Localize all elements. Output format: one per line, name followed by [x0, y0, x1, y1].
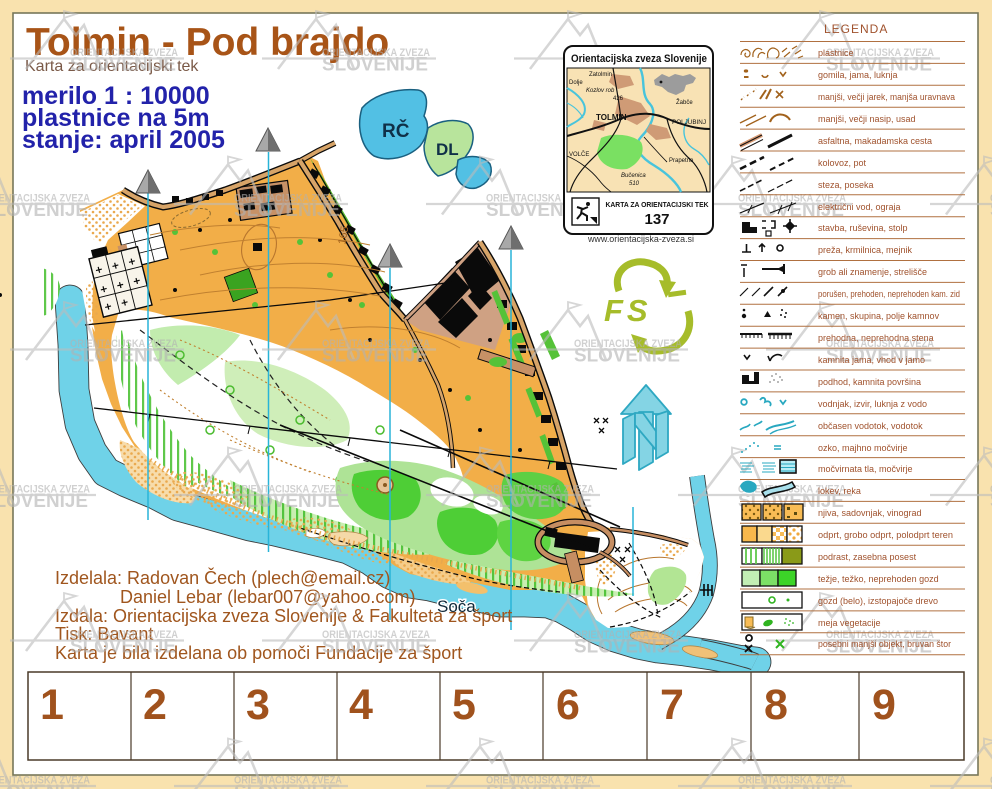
svg-text:Dolje: Dolje — [569, 80, 583, 86]
svg-text:grob ali znamenje, strelišče: grob ali znamenje, strelišče — [818, 267, 927, 277]
svg-text:LEGENDA: LEGENDA — [824, 22, 888, 36]
svg-text:asfaltna, makadamska cesta: asfaltna, makadamska cesta — [818, 136, 932, 146]
svg-text:posebni manjši objekt, bruvan: posebni manjši objekt, bruvan štor — [818, 639, 951, 649]
svg-text:510: 510 — [629, 181, 640, 187]
svg-text:odprt, grobo odprt, polodprt t: odprt, grobo odprt, polodprt teren — [818, 530, 953, 540]
svg-text:2: 2 — [143, 681, 167, 729]
svg-text:Bučenica: Bučenica — [621, 173, 646, 179]
svg-text:kamen, skupina, polje kamnov: kamen, skupina, polje kamnov — [818, 311, 940, 321]
svg-text:VOLČE: VOLČE — [569, 151, 589, 158]
svg-text:DL: DL — [436, 140, 459, 159]
svg-text:kamnita jama, vhod v jamo: kamnita jama, vhod v jamo — [818, 355, 925, 365]
svg-text:stavba, ruševina, stolp: stavba, ruševina, stolp — [818, 223, 908, 233]
svg-text:vodnjak, izvir, luknja z vodo: vodnjak, izvir, luknja z vodo — [818, 399, 927, 409]
svg-text:5: 5 — [452, 681, 476, 729]
svg-text:137: 137 — [644, 211, 669, 228]
svg-text:lokev, reka: lokev, reka — [818, 486, 861, 496]
svg-text:močvirnata tla, močvirje: močvirnata tla, močvirje — [818, 464, 913, 474]
svg-text:meja vegetacije: meja vegetacije — [818, 618, 881, 628]
svg-text:njiva, sadovnjak, vinograd: njiva, sadovnjak, vinograd — [818, 508, 922, 518]
svg-text:FS: FS — [604, 293, 652, 328]
svg-text:prehodna, neprehodna stena: prehodna, neprehodna stena — [818, 333, 934, 343]
svg-text:podhod, kamnita površina: podhod, kamnita površina — [818, 377, 921, 387]
svg-text:kolovoz, pot: kolovoz, pot — [818, 158, 867, 168]
svg-text:stanje: april 2005: stanje: april 2005 — [22, 126, 225, 154]
svg-text:9: 9 — [872, 681, 896, 729]
svg-text:plastnice: plastnice — [818, 48, 854, 58]
svg-text:Izdala: Orientacijska zveza Sl: Izdala: Orientacijska zveza Slovenije & … — [55, 606, 512, 626]
svg-text:gozd (belo), izstopajoče drevo: gozd (belo), izstopajoče drevo — [818, 596, 938, 606]
svg-text:6: 6 — [556, 681, 580, 729]
svg-text:426: 426 — [613, 96, 624, 102]
svg-text:steza, poseka: steza, poseka — [818, 180, 874, 190]
svg-text:porušen, prehoden, neprehoden: porušen, prehoden, neprehoden kam. zid — [818, 289, 960, 299]
svg-text:težje, težko, neprehoden gozd: težje, težko, neprehoden gozd — [818, 574, 939, 584]
svg-text:manjši, večji nasip, usad: manjši, večji nasip, usad — [818, 114, 916, 124]
svg-text:TOLMIN: TOLMIN — [596, 113, 627, 122]
svg-text:KARTA ZA ORIENTACIJSKI TEK: KARTA ZA ORIENTACIJSKI TEK — [606, 200, 710, 209]
svg-text:4: 4 — [349, 681, 373, 729]
svg-text:3: 3 — [246, 681, 270, 729]
svg-text:7: 7 — [660, 681, 684, 729]
svg-text:8: 8 — [764, 681, 788, 729]
svg-text:Žabče: Žabče — [676, 98, 693, 106]
svg-text:Kozlov rob: Kozlov rob — [586, 88, 615, 94]
svg-text:Izdelala: Radovan Čech (plech@: Izdelala: Radovan Čech (plech@email.cz) — [55, 567, 390, 588]
svg-text:POLJUBINJ: POLJUBINJ — [672, 120, 706, 126]
svg-text:Zatolmin: Zatolmin — [589, 72, 612, 78]
svg-text:Daniel Lebar (lebar007@yahoo.c: Daniel Lebar (lebar007@yahoo.com) — [120, 587, 415, 607]
svg-text:Orientacijska zveza Slovenije: Orientacijska zveza Slovenije — [571, 53, 707, 65]
svg-text:ozko, majhno močvirje: ozko, majhno močvirje — [818, 443, 908, 453]
svg-text:občasen vodotok, vodotok: občasen vodotok, vodotok — [818, 421, 923, 431]
svg-text:podrast, zasebna posest: podrast, zasebna posest — [818, 552, 917, 562]
svg-text:manjši, večji jarek, manjša ur: manjši, večji jarek, manjša uravnava — [818, 92, 955, 102]
svg-text:www.orientacijska-zveza.si: www.orientacijska-zveza.si — [587, 234, 694, 245]
svg-text:Prapetno: Prapetno — [669, 158, 694, 164]
svg-text:preža, krmilnica, mejnik: preža, krmilnica, mejnik — [818, 245, 913, 255]
svg-text:1: 1 — [40, 681, 64, 729]
svg-text:RČ: RČ — [382, 120, 410, 142]
svg-text:gomila, jama, luknja: gomila, jama, luknja — [818, 70, 898, 80]
svg-text:električni vod, ograja: električni vod, ograja — [818, 202, 901, 212]
